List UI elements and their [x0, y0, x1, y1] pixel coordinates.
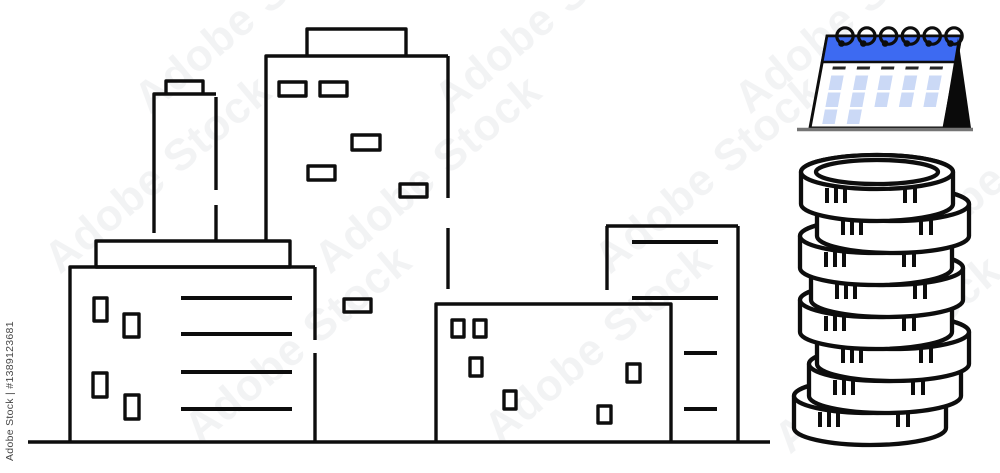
stock-illustration-page: Adobe StockAdobe StockAdobe StockAdobe S…: [0, 0, 1000, 473]
spiral-ring-dot: [947, 40, 954, 47]
roof-platform: [96, 241, 290, 267]
factory-windows: [93, 298, 139, 419]
watermark-credit-text: Adobe Stock | #1389123681: [4, 321, 16, 461]
spiral-ring-dot: [882, 40, 889, 47]
coin: [801, 155, 953, 221]
coin-stack-icon: [794, 155, 969, 445]
spiral-ring-dot: [925, 40, 932, 47]
watermark-tile: Adobe Stock: [305, 65, 551, 282]
calendar-dash: [857, 67, 871, 70]
spiral-ring-dot: [860, 40, 867, 47]
watermark-tile: Adobe Stock: [585, 65, 831, 282]
calendar-dash: [881, 67, 895, 70]
calendar-dash: [930, 67, 944, 70]
spiral-ring-dot: [838, 40, 845, 47]
calendar-body: [810, 36, 961, 128]
spiral-ring-dot: [904, 40, 911, 47]
stock-illustration-canvas: Adobe StockAdobe StockAdobe StockAdobe S…: [0, 0, 1000, 473]
calendar-dash: [905, 67, 919, 70]
calendar-dash: [832, 67, 846, 70]
